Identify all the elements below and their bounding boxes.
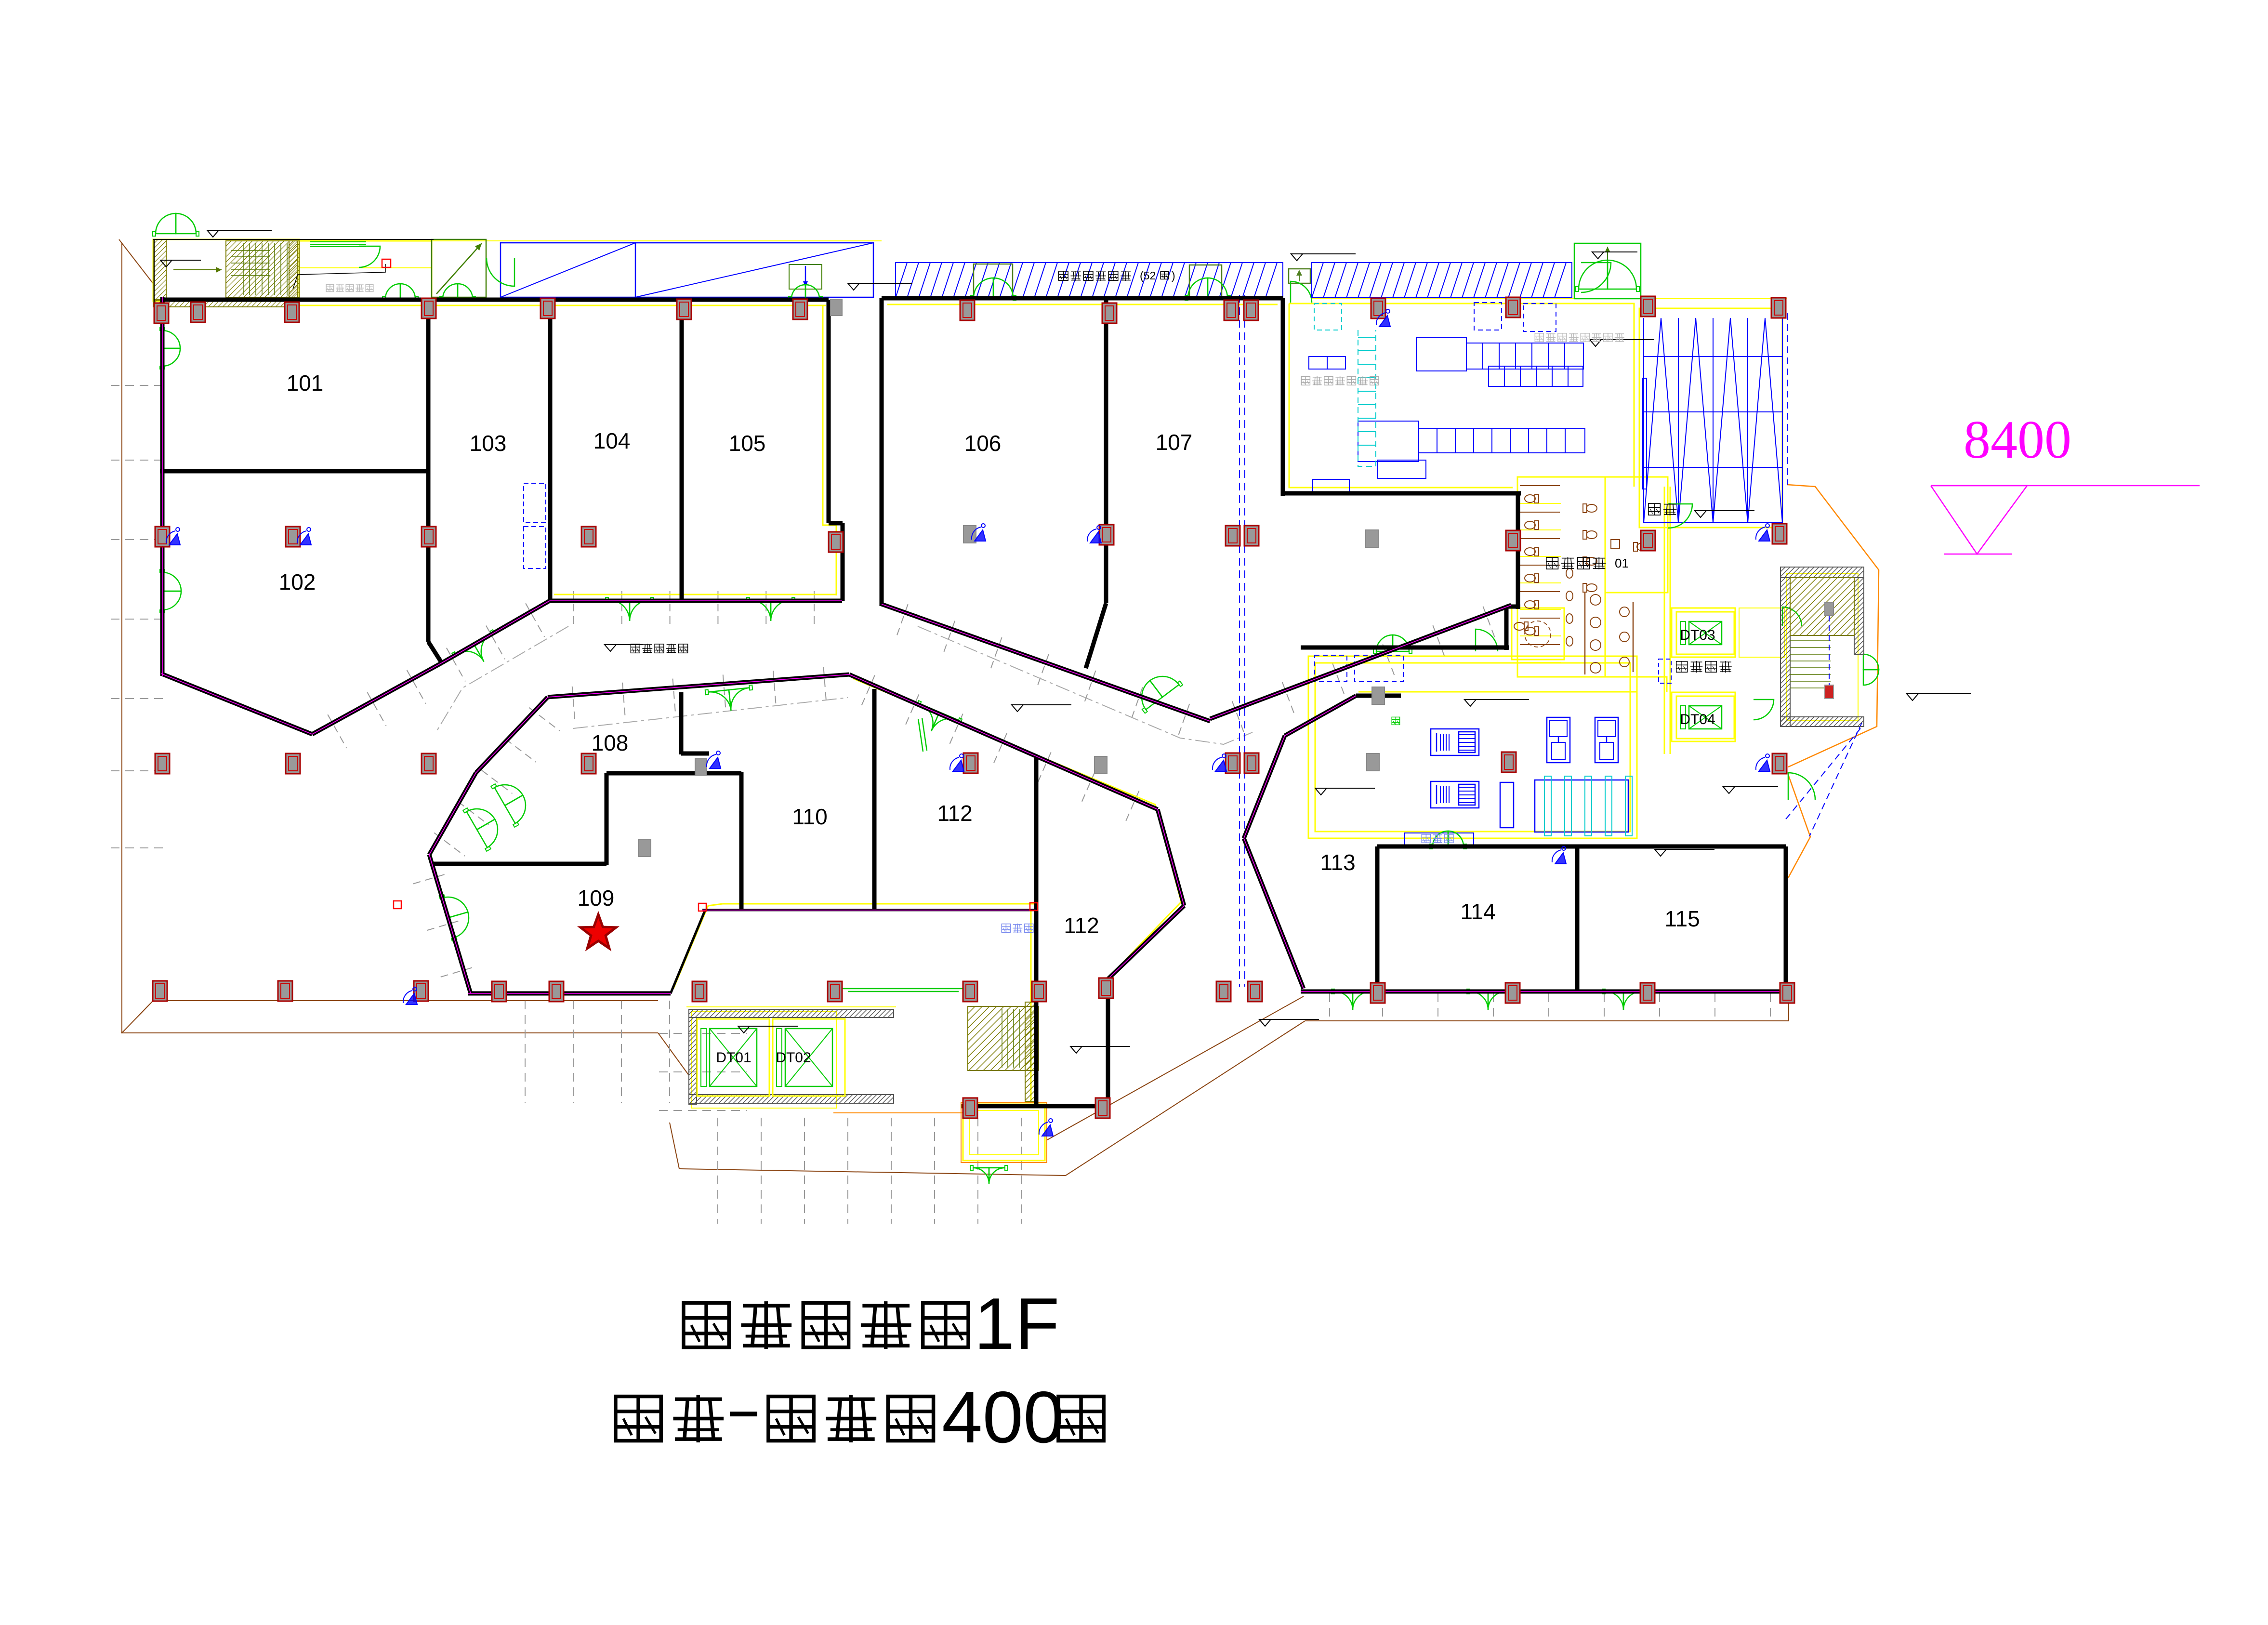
svg-text:106: 106: [964, 431, 1002, 456]
svg-text:DT02: DT02: [776, 1050, 811, 1066]
svg-text:101: 101: [287, 370, 324, 396]
svg-text:): ): [1172, 269, 1175, 282]
svg-text:102: 102: [279, 569, 316, 595]
svg-text:112: 112: [937, 801, 972, 826]
svg-text:110: 110: [792, 804, 827, 829]
svg-text:109: 109: [578, 885, 615, 911]
svg-text:113: 113: [1320, 850, 1355, 875]
svg-text:115: 115: [1664, 906, 1700, 931]
svg-text:(52: (52: [1140, 269, 1156, 282]
svg-text:8400: 8400: [1964, 410, 2071, 470]
svg-text:108: 108: [592, 730, 629, 755]
svg-text:107: 107: [1156, 430, 1193, 455]
svg-text:112: 112: [1064, 913, 1099, 938]
svg-text:DT03: DT03: [1680, 627, 1715, 643]
svg-text:104: 104: [593, 428, 631, 453]
svg-text:114: 114: [1460, 899, 1495, 924]
svg-text:400: 400: [942, 1376, 1064, 1458]
svg-text:105: 105: [729, 431, 766, 456]
svg-text:01: 01: [1615, 556, 1629, 570]
svg-text:DT04: DT04: [1680, 712, 1715, 727]
svg-text:1F: 1F: [974, 1283, 1059, 1365]
svg-text:103: 103: [470, 431, 507, 456]
svg-text:DT01: DT01: [716, 1050, 751, 1066]
